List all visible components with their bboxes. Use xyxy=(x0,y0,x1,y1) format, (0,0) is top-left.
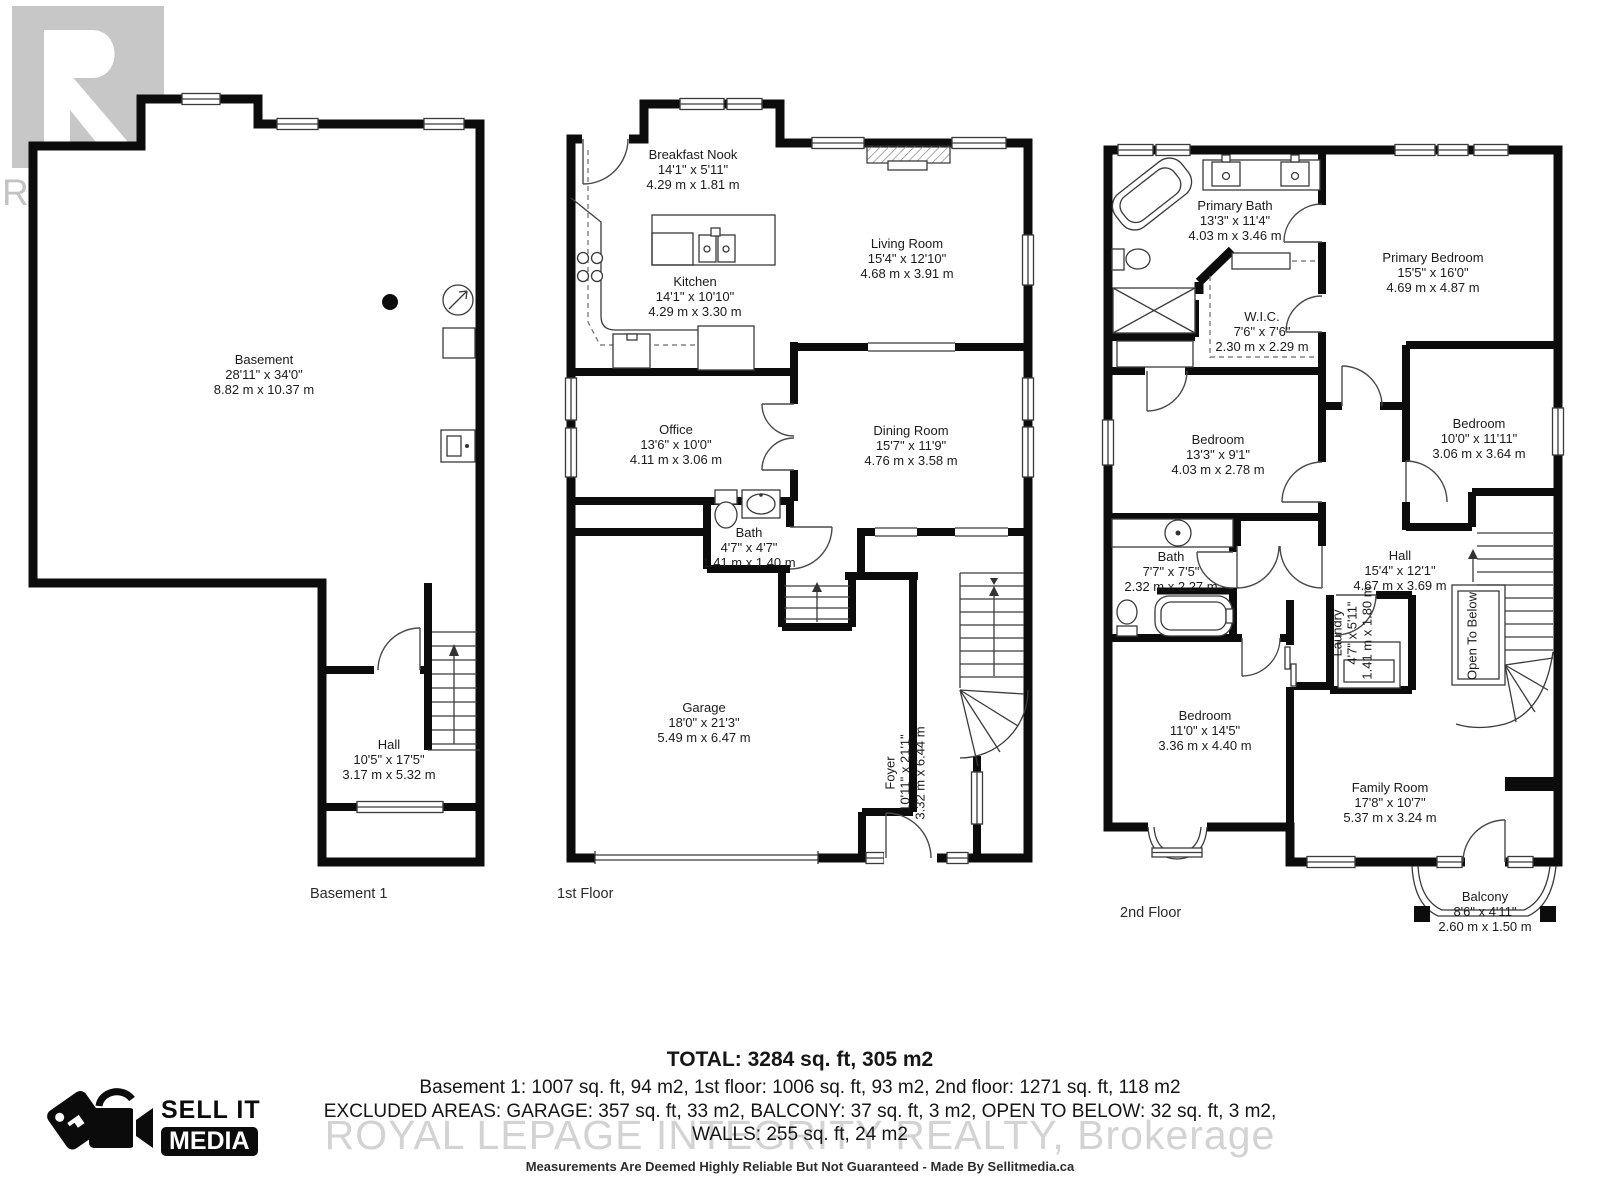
summary-disclaimer: Measurements Are Deemed Highly Reliable … xyxy=(0,1159,1600,1174)
electrical-panel-icon xyxy=(443,285,473,315)
room-label-bedroom-2: Bedroom13'3" x 9'1"4.03 m x 2.78 m xyxy=(1171,432,1264,477)
garage-door xyxy=(595,851,818,864)
sellit-text: SELL IT xyxy=(161,1096,261,1125)
room-label-primary-bedroom: Primary Bedroom15'5" x 16'0"4.69 m x 4.8… xyxy=(1382,250,1483,295)
first-floor-plan xyxy=(566,99,1034,865)
room-label-breakfast-nook: Breakfast Nook14'1" x 5'11"4.29 m x 1.81… xyxy=(646,147,739,192)
room-label-family-room: Family Room17'8" x 10'7"5.37 m x 3.24 m xyxy=(1343,780,1436,825)
room-label-foyer: Foyer10'11" x 21'1"3.32 m x 6.44 m xyxy=(883,726,928,819)
room-label-basement: Basement28'11" x 34'0"8.82 m x 10.37 m xyxy=(214,352,314,397)
floor-label-second: 2nd Floor xyxy=(1120,905,1181,921)
summary-total: TOTAL: 3284 sq. ft, 305 m2 xyxy=(0,1048,1600,1072)
toilet-icon xyxy=(1112,249,1150,270)
room-label-wic: W.I.C.7'6" x 7'6"2.30 m x 2.29 m xyxy=(1215,309,1308,354)
media-text: MEDIA xyxy=(161,1127,258,1156)
fridge-icon xyxy=(698,326,754,370)
sellitmedia-logo-icon xyxy=(45,1078,155,1160)
floorplan-page: { "watermarks": { "realtor_logo_text": "… xyxy=(0,0,1600,1200)
utility-box xyxy=(443,328,475,358)
floor-label-first: 1st Floor xyxy=(557,886,613,902)
room-label-kitchen: Kitchen14'1" x 10'10"4.29 m x 3.30 m xyxy=(648,274,741,319)
sliding-closet-doors xyxy=(1284,645,1296,687)
room-label-open-to-below: Open To Below xyxy=(1465,592,1480,680)
room-label-bedroom-3: Bedroom10'0" x 11'11"3.06 m x 3.64 m xyxy=(1432,416,1525,461)
room-label-laundry: Laundry4'7" x 5'11"1.41 m x 1.80 m xyxy=(1330,586,1375,679)
furnace-icon xyxy=(441,430,475,462)
room-label-office: Office13'6" x 10'0"4.11 m x 3.06 m xyxy=(630,422,722,467)
room-label-basement-hall: Hall10'5" x 17'5"3.17 m x 5.32 m xyxy=(342,737,435,782)
room-label-bath-1st: Bath4'7" x 4'7"1.41 m x 1.40 m xyxy=(702,525,795,570)
room-label-living-room: Living Room15'4" x 12'10"4.68 m x 3.91 m xyxy=(860,236,953,281)
shower-icon xyxy=(1113,288,1195,333)
bay-window xyxy=(1148,821,1207,859)
sellitmedia-logo: SELL IT MEDIA xyxy=(45,1078,261,1160)
room-label-garage: Garage18'0" x 21'3"5.49 m x 6.47 m xyxy=(657,700,750,745)
room-label-balcony: Balcony8'6" x 4'11"2.60 m x 1.50 m xyxy=(1438,889,1531,934)
support-post xyxy=(382,294,398,310)
room-label-bedroom-4: Bedroom11'0" x 14'5"3.36 m x 4.40 m xyxy=(1158,708,1251,753)
floor-label-basement: Basement 1 xyxy=(310,886,387,902)
room-label-bath-2nd: Bath7'7" x 7'5"2.32 m x 2.27 m xyxy=(1124,549,1217,594)
kitchen-island xyxy=(652,215,775,265)
second-floor-plan xyxy=(1103,145,1564,923)
room-label-dining-room: Dining Room15'7" x 11'9"4.76 m x 3.58 m xyxy=(864,423,957,468)
room-label-primary-bath: Primary Bath13'3" x 11'4"4.03 m x 3.46 m xyxy=(1188,198,1281,243)
